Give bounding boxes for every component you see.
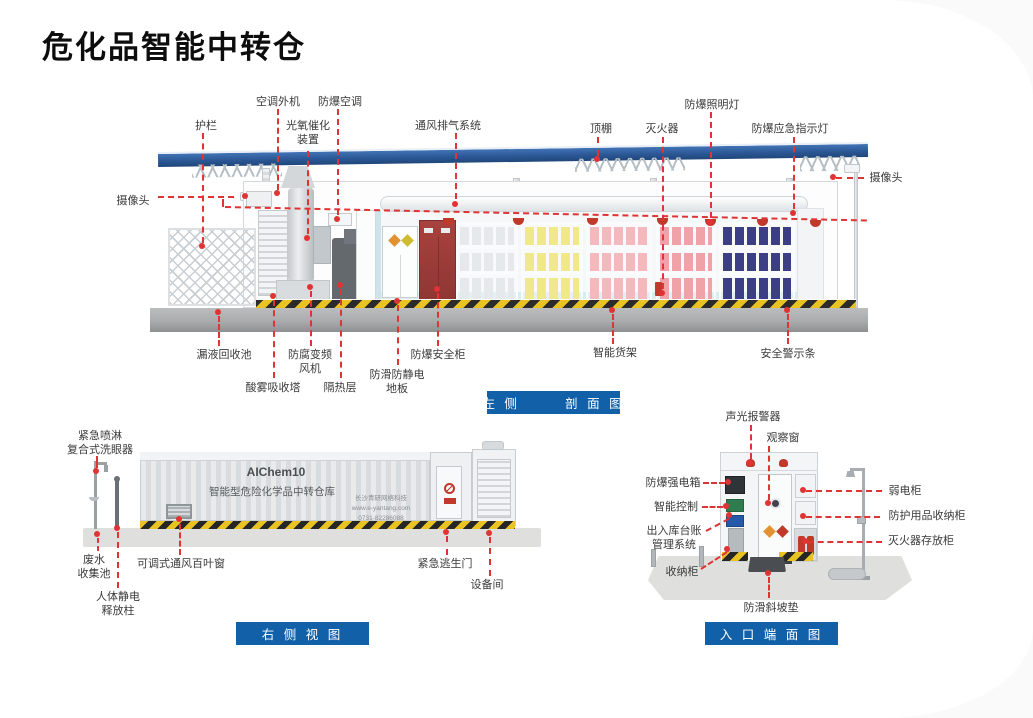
leader-dot: [307, 284, 313, 290]
outdoor-ac-unit: [246, 191, 272, 207]
static-release-ball: [114, 476, 120, 482]
leader-line: [662, 137, 664, 289]
caption-left-section-view: 左 侧 剖 面 图: [487, 391, 620, 414]
stored-goods: [525, 227, 579, 245]
base-hazard-stripe: [140, 521, 515, 529]
guardrail-fence: [168, 228, 256, 306]
insulation-wall: [356, 210, 376, 304]
leader-dot: [270, 293, 276, 299]
label-explosion-proof-lamp: 防爆照明灯: [685, 98, 740, 112]
content-card: [0, 0, 1033, 718]
label-antislip-ramp: 防滑斜坡垫: [744, 601, 799, 615]
leader-dot: [215, 309, 221, 315]
leader-line: [455, 133, 457, 199]
label-storage-cabinet: 收纳柜: [666, 565, 699, 579]
leader-dot: [443, 529, 449, 535]
leader-dot: [199, 243, 205, 249]
ppe-cabinet-door: [795, 501, 816, 525]
leader-dot: [723, 503, 729, 509]
label-weak-power-cabinet: 弱电柜: [889, 484, 922, 498]
anticorrosion-fan-unit: [332, 238, 356, 302]
stored-goods: [590, 227, 648, 245]
leader-line: [337, 109, 339, 215]
leader-line: [750, 425, 752, 459]
cabinet-label: [424, 228, 433, 233]
stored-goods: [723, 253, 791, 271]
leader-dot: [486, 530, 492, 536]
label-guardrail: 护栏: [195, 119, 217, 133]
page: 危化品智能中转仓: [0, 0, 1033, 718]
leader-dot: [747, 460, 753, 466]
leader-line: [202, 133, 204, 243]
camera-pole: [854, 172, 858, 308]
entrance-door: [758, 474, 792, 561]
stored-goods: [525, 253, 579, 271]
label-extinguisher-cabinet: 灭火器存放柜: [888, 534, 954, 548]
leader-dot: [176, 516, 182, 522]
container-top-rail: [140, 452, 430, 461]
label-canopy: 顶棚: [590, 122, 612, 136]
concrete-slab: [150, 308, 868, 332]
acid-mist-tower-body: [288, 188, 314, 282]
label-waste-pool: 废水 收集池: [78, 553, 111, 582]
leader-dot: [659, 290, 665, 296]
container-company-text: 长沙青研网络科技: [355, 494, 407, 504]
stored-goods: [723, 227, 791, 245]
camera-icon: [844, 164, 860, 173]
concrete-pad: [83, 528, 541, 547]
stored-goods: [660, 253, 712, 271]
hazard-diamond-icon: [776, 525, 789, 538]
static-release-pole: [115, 480, 119, 528]
label-insulation-layer: 隔热层: [324, 381, 357, 395]
leader-line: [612, 314, 614, 344]
label-static-release: 人体静电 释放柱: [96, 590, 140, 619]
leader-line: [96, 456, 98, 468]
label-ac-outdoor: 空调外机: [256, 95, 300, 109]
leader-dot: [274, 190, 280, 196]
leader-dot: [609, 307, 615, 313]
stored-goods: [590, 278, 648, 300]
leader-line: [489, 537, 491, 576]
leader-dot: [800, 513, 806, 519]
leader-dot: [114, 525, 120, 531]
alarm-light-icon: [779, 459, 788, 467]
leader-line: [307, 151, 309, 234]
leader-dot: [800, 487, 806, 493]
leader-dot: [94, 531, 100, 537]
label-ventilation-system: 通风排气系统: [415, 119, 481, 133]
container-name-text: 智能型危险化学品中转仓库: [209, 484, 335, 499]
leader-line: [222, 199, 224, 207]
shower-arm: [850, 468, 863, 471]
leader-line: [768, 446, 770, 500]
leader-line: [117, 532, 119, 588]
smart-shelf-bay: [586, 222, 652, 302]
observation-window-icon: [770, 498, 781, 509]
smart-shelf-bay: [719, 222, 795, 302]
label-equipment-room: 设备间: [471, 578, 504, 592]
leader-line: [597, 137, 599, 156]
hazard-diamond-icon: [763, 525, 776, 538]
cabinet-label: [441, 228, 450, 233]
leader-line: [806, 490, 882, 492]
leader-dot: [790, 210, 796, 216]
leader-line: [97, 538, 99, 551]
leader-line: [340, 289, 342, 378]
escape-door: [436, 466, 462, 519]
label-observation-window: 观察窗: [767, 431, 800, 445]
leader-line: [703, 482, 725, 484]
leader-dot: [784, 307, 790, 313]
explosion-proof-ac-unit: [328, 213, 352, 226]
label-photocatalytic-device: 光氧催化 装置: [286, 119, 330, 148]
label-ledger-system: 出入库台账 管理系统: [647, 524, 702, 553]
prohibition-sign-icon: [444, 483, 455, 494]
container-phone-text: 0731-82286088: [358, 514, 404, 524]
label-warning-strip: 安全警示条: [761, 347, 816, 361]
white-safety-cabinet: [382, 226, 418, 298]
smart-shelf-bay: [656, 222, 716, 302]
drain-pit: [828, 568, 866, 580]
leader-line: [836, 177, 864, 179]
stored-goods: [525, 278, 579, 300]
label-escape-door: 紧急逃生门: [418, 557, 473, 571]
container-model-text: AIChem10: [247, 465, 306, 479]
photocatalytic-unit: [313, 226, 331, 264]
caption-entrance-end-view: 入 口 端 面 图: [705, 622, 838, 645]
label-safety-cabinet: 防爆安全柜: [411, 348, 466, 362]
roof-truss: [575, 157, 685, 172]
leader-line: [793, 137, 795, 209]
shower-head: [846, 471, 855, 477]
leader-line: [446, 536, 448, 555]
label-camera-left: 摄像头: [117, 194, 150, 208]
stored-goods: [660, 278, 712, 300]
smart-shelf-bay: [521, 222, 583, 302]
leader-dot: [93, 468, 99, 474]
stored-goods: [660, 227, 712, 245]
cabinet-door-seam: [400, 255, 401, 297]
leader-dot: [594, 156, 600, 162]
stored-goods: [723, 278, 791, 300]
label-leak-recovery-pool: 漏液回收池: [197, 348, 252, 362]
leader-line: [437, 293, 439, 346]
leader-dot: [337, 282, 343, 288]
eyewash-head: [104, 465, 108, 472]
label-smart-control: 智能控制: [654, 500, 698, 514]
roof-vent-cap: [482, 441, 504, 450]
leader-dot: [334, 216, 340, 222]
door-warning-label: [444, 498, 456, 504]
label-smart-shelf: 智能货架: [593, 346, 637, 360]
label-strong-power-box: 防爆强电箱: [646, 476, 701, 490]
leader-dot: [765, 570, 771, 576]
equipment-room-box: [472, 449, 516, 526]
label-eyewash: 紧急喷淋 复合式洗眼器: [67, 429, 133, 458]
leader-line: [397, 305, 399, 365]
leader-line: [806, 516, 880, 518]
leader-dot: [452, 201, 458, 207]
label-anticorrosion-fan: 防腐变频 风机: [288, 348, 332, 377]
leader-line: [179, 524, 181, 555]
leader-dot: [802, 538, 808, 544]
smart-shelf-bay: [456, 222, 518, 302]
label-ppe-cabinet: 防护用品收纳柜: [889, 509, 966, 523]
leader-dot: [830, 174, 836, 180]
leader-dot: [726, 512, 732, 518]
hazard-diamond-icon: [388, 234, 401, 247]
container-website-text: www.e-yantang.com: [352, 504, 411, 514]
stored-goods: [590, 253, 648, 271]
label-antistatic-floor: 防滑防静电 地板: [370, 368, 425, 397]
leader-line: [273, 300, 275, 378]
stored-goods: [460, 227, 514, 245]
stored-goods: [460, 278, 514, 300]
leader-line: [277, 109, 279, 190]
label-explosion-proof-ac: 防爆空调: [318, 95, 362, 109]
leader-line: [158, 196, 234, 198]
leader-dot: [725, 479, 731, 485]
leader-dot: [724, 546, 730, 552]
label-camera-right: 摄像头: [870, 171, 903, 185]
leader-line: [768, 577, 770, 598]
label-adjustable-louver: 可调式通风百叶窗: [137, 557, 225, 571]
equipment-room-louver: [477, 459, 511, 518]
label-sound-light-alarm: 声光报警器: [726, 410, 781, 424]
leader-dot: [765, 500, 771, 506]
label-acid-mist-tower: 酸雾吸收塔: [246, 381, 301, 395]
label-fire-extinguisher: 灭火器: [646, 122, 679, 136]
hazard-diamond-icon: [401, 234, 414, 247]
leader-dot: [707, 219, 713, 225]
stored-goods: [460, 253, 514, 271]
leader-line: [787, 314, 789, 344]
page-title: 危化品智能中转仓: [42, 22, 306, 67]
leader-line: [808, 541, 882, 543]
leader-dot: [434, 286, 440, 292]
caption-right-side-view: 右 侧 视 图: [236, 622, 369, 645]
leader-line: [702, 506, 723, 508]
label-emergency-indicator: 防爆应急指示灯: [752, 122, 829, 136]
leader-line: [218, 316, 220, 346]
leader-dot: [394, 298, 400, 304]
leader-dot: [304, 235, 310, 241]
leader-line: [310, 291, 312, 346]
weak-power-cabinet-door: [795, 474, 816, 498]
leader-dot: [242, 193, 248, 199]
leader-line: [710, 112, 712, 218]
insulation-wall-face: [376, 210, 381, 304]
